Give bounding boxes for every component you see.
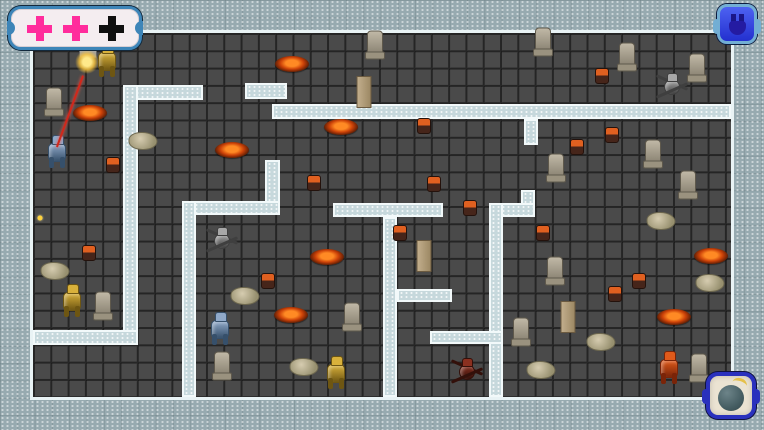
maze-wall xyxy=(430,331,503,344)
item-rock xyxy=(587,333,616,351)
health-cross-icon xyxy=(99,16,124,41)
game-screen xyxy=(0,0,764,430)
item-lava xyxy=(274,307,308,323)
item-pillar xyxy=(561,301,576,333)
maze-wall xyxy=(397,289,452,302)
item-lava xyxy=(215,142,249,158)
maze-wall xyxy=(489,203,503,397)
health-cross-icon xyxy=(27,16,52,41)
item-rock xyxy=(129,132,158,150)
item-pillar xyxy=(357,76,372,108)
item-ember xyxy=(608,286,622,302)
item-ember xyxy=(570,139,584,155)
maze-wall xyxy=(333,203,443,217)
item-lava xyxy=(310,249,344,265)
robot-head xyxy=(67,284,79,294)
item-rock xyxy=(290,358,319,376)
robot-torso xyxy=(211,320,229,339)
robot-head xyxy=(664,351,676,361)
item-ember xyxy=(632,273,646,289)
item-statue xyxy=(367,31,383,58)
item-statue xyxy=(548,154,564,181)
item-statue xyxy=(95,292,111,319)
robot-blue-mech xyxy=(207,311,233,345)
item-ember xyxy=(605,127,619,143)
item-statue xyxy=(344,303,360,330)
maze-wall xyxy=(182,201,196,397)
robot-head xyxy=(215,312,227,322)
item-ember xyxy=(307,175,321,191)
pause-button[interactable] xyxy=(717,4,757,44)
maze-wall xyxy=(245,83,287,99)
item-rock xyxy=(696,274,725,292)
button-notch-right xyxy=(755,389,760,404)
robot-torso xyxy=(98,52,116,71)
item-ember xyxy=(417,118,431,134)
maze-wall xyxy=(182,201,280,215)
item-rock xyxy=(41,262,70,280)
robot-blue-mech xyxy=(44,134,70,168)
item-lava xyxy=(73,105,107,121)
item-statue xyxy=(535,28,551,55)
maze-wall xyxy=(33,330,138,345)
item-ember xyxy=(427,176,441,192)
robot-head xyxy=(331,356,343,366)
item-ember xyxy=(463,200,477,216)
item-statue xyxy=(214,352,230,379)
robot-flame-mech xyxy=(656,350,682,384)
item-lava xyxy=(657,309,691,325)
item-ember xyxy=(595,68,609,84)
button-notch-left xyxy=(713,19,718,34)
item-statue xyxy=(619,43,635,70)
robot-gray-spider xyxy=(207,227,237,253)
item-ember xyxy=(536,225,550,241)
pause-icon xyxy=(720,7,754,41)
panel-notch-right xyxy=(135,21,143,35)
item-statue xyxy=(46,88,62,115)
item-lava xyxy=(324,119,358,135)
robot-torso xyxy=(327,364,345,383)
health-panel xyxy=(8,6,142,50)
robot-torso xyxy=(63,292,81,311)
item-lava xyxy=(275,56,309,72)
item-statue xyxy=(645,140,661,167)
robot-red-spider xyxy=(452,358,482,384)
maze-wall xyxy=(383,217,397,397)
explosion-flash xyxy=(75,50,99,74)
item-rock xyxy=(231,287,260,305)
item-ember xyxy=(393,225,407,241)
button-notch-right xyxy=(756,19,761,34)
item-statue xyxy=(689,54,705,81)
maze-wall xyxy=(524,119,538,145)
item-statue xyxy=(547,257,563,284)
item-ember xyxy=(82,245,96,261)
robot-head xyxy=(667,73,678,82)
maze-wall xyxy=(123,85,138,345)
maze-wall xyxy=(272,104,731,119)
health-cross-icon xyxy=(63,16,88,41)
item-rock xyxy=(527,361,556,379)
robot-gray-spider xyxy=(657,73,687,99)
item-ember xyxy=(106,157,120,173)
bomb-button[interactable] xyxy=(706,372,756,419)
robot-head xyxy=(217,227,228,236)
robot-gold-mech xyxy=(323,355,349,389)
item-pillar xyxy=(417,240,432,272)
item-rock xyxy=(647,212,676,230)
item-statue xyxy=(691,354,707,381)
item-ember xyxy=(261,273,275,289)
spark xyxy=(38,216,43,221)
robot-head xyxy=(462,358,473,367)
item-lava xyxy=(694,248,728,264)
item-statue xyxy=(513,318,529,345)
item-statue xyxy=(680,171,696,198)
robot-torso xyxy=(660,359,678,378)
robot-gold-mech xyxy=(59,283,85,317)
button-notch-left xyxy=(702,389,707,404)
panel-notch-left xyxy=(7,21,15,35)
